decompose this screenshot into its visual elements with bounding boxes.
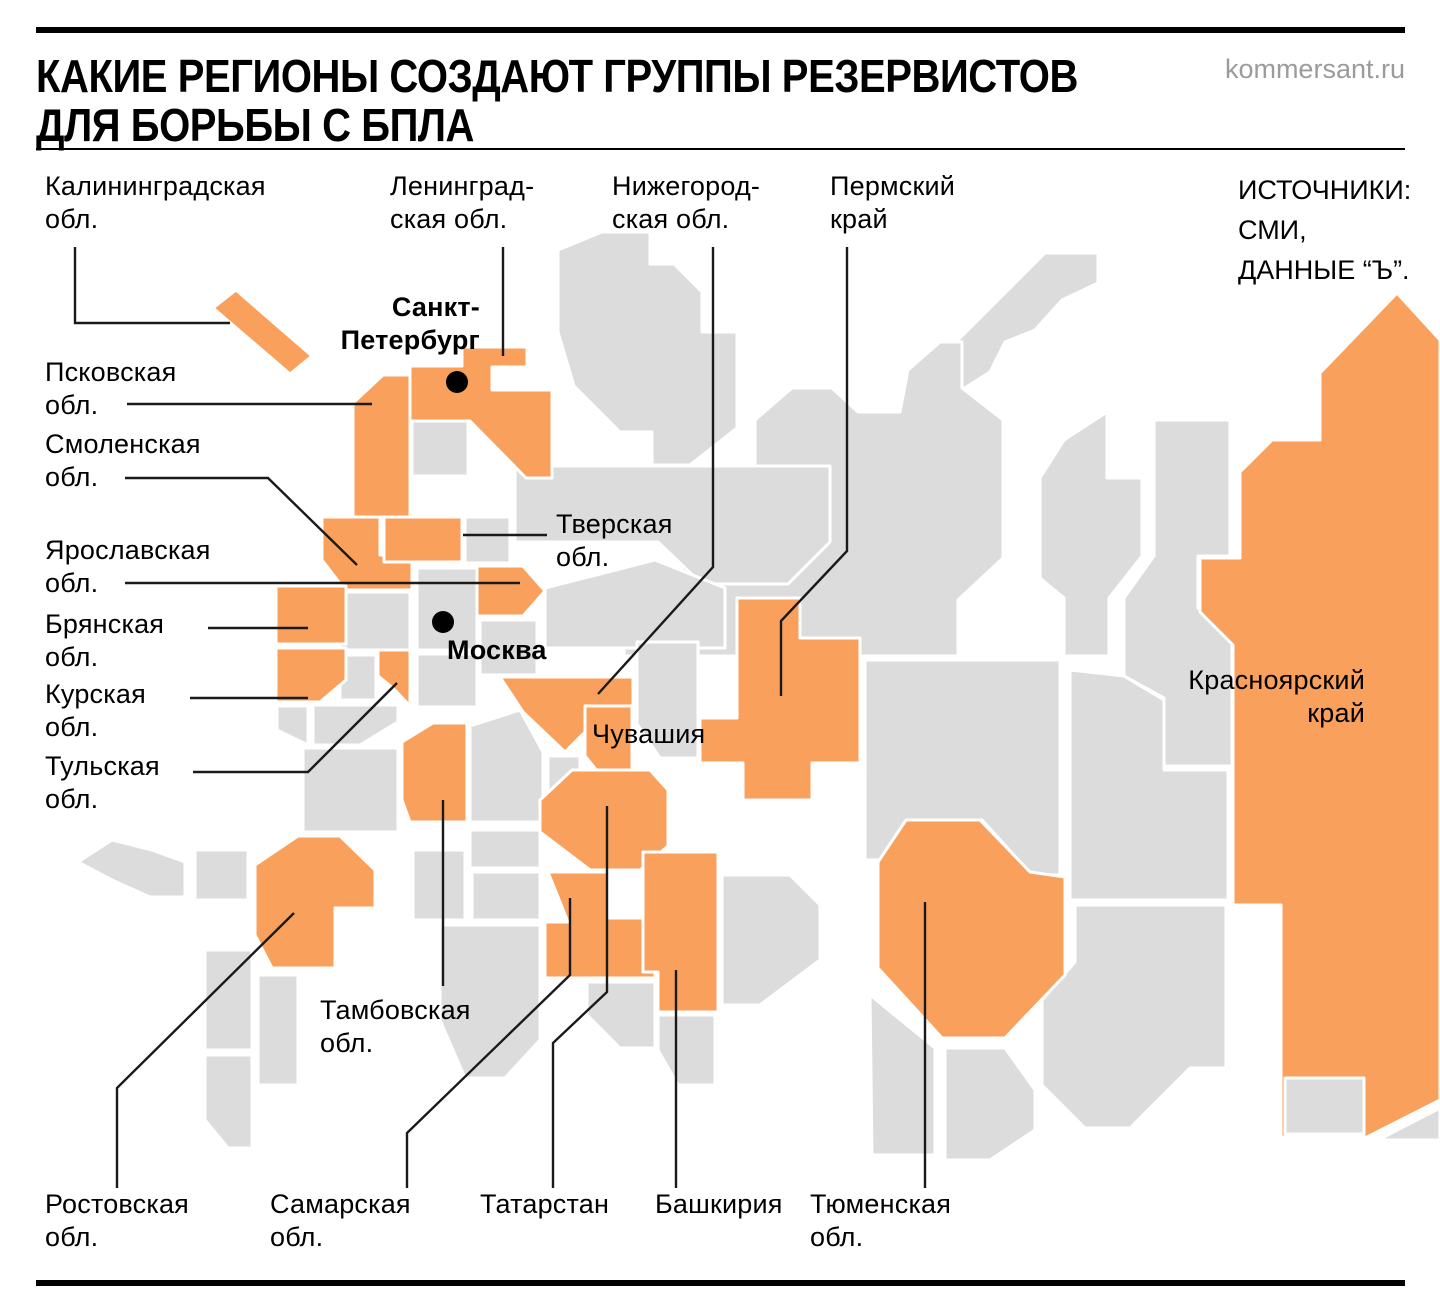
- map-region-kursk: [276, 648, 346, 702]
- label-pskov: Псковскаяобл.: [45, 356, 176, 422]
- label-nizhegorod: Нижегород-ская обл.: [612, 170, 760, 236]
- map-region-kurgan-b: [945, 1048, 1035, 1160]
- map-region-bryansk: [276, 586, 346, 644]
- label-kursk: Курскаяобл.: [45, 678, 146, 744]
- map-region-astrakhan-b: [658, 1015, 715, 1085]
- base-regions: [78, 232, 1232, 1160]
- map-region-stavropol: [205, 950, 252, 1050]
- map-region-kaluga: [340, 592, 410, 650]
- map-region-samara: [545, 872, 655, 978]
- map-region-rostov: [255, 836, 375, 968]
- map-region-tambov: [402, 723, 467, 822]
- label-bryansk: Брянскаяобл.: [45, 608, 164, 674]
- label-krasnoyarsk: Красноярскийкрай: [1135, 664, 1365, 730]
- map-region-voronezh: [303, 748, 398, 832]
- map-region-mordovia: [470, 710, 543, 822]
- map-region-crimea: [78, 840, 185, 897]
- map-region-tver-gap-tile: [465, 517, 510, 563]
- map-region-belgorod: [277, 706, 308, 745]
- callout-kaliningrad: [75, 247, 230, 323]
- map-region-astrakhan-a: [587, 982, 655, 1048]
- label-tula: Тульскаяобл.: [45, 750, 160, 816]
- label-moscow: Москва: [447, 634, 547, 667]
- label-bashkiria: Башкирия: [655, 1188, 783, 1221]
- map-region-karelia: [558, 232, 737, 465]
- label-tver: Тверскаяобл.: [556, 508, 673, 574]
- map-region-saratov-w: [413, 850, 465, 920]
- map-region-kalmykia: [258, 975, 298, 1085]
- label-chuvashia: Чувашия: [592, 718, 705, 751]
- map-region-yaroslavl: [477, 566, 545, 616]
- spb-city-dot: [446, 371, 468, 393]
- label-tambov: Тамбовскаяобл.: [320, 994, 471, 1060]
- map-region-novgorod: [412, 419, 468, 476]
- map-region-penza-s: [472, 872, 540, 920]
- label-yaroslavl: Ярославскаяобл.: [45, 534, 211, 600]
- label-smolensk: Смоленскаяобл.: [45, 428, 201, 494]
- map-region-kuban: [195, 850, 248, 900]
- label-tyumen: Тюменскаяобл.: [810, 1188, 951, 1254]
- map-region-dagestan: [205, 1055, 252, 1148]
- map-region-khakassia-notch: [1285, 1078, 1364, 1134]
- label-perm: Пермскийкрай: [830, 170, 955, 236]
- map-region-penza-n: [470, 830, 540, 868]
- map-region-orenburg: [722, 875, 820, 1005]
- label-samara: Самарскаяобл.: [270, 1188, 411, 1254]
- map-region-pskov: [353, 375, 410, 517]
- map-region-omsk-cluster: [1042, 905, 1226, 1128]
- label-rostov: Ростовскаяобл.: [45, 1188, 189, 1254]
- map-region-tver: [384, 517, 462, 562]
- label-tatarstan: Татарстан: [480, 1188, 609, 1221]
- infographic-root: КАКИЕ РЕГИОНЫ СОЗДАЮТ ГРУППЫ РЕЗЕРВИСТОВ…: [0, 0, 1440, 1315]
- label-kaliningrad: Калининградскаяобл.: [45, 170, 266, 236]
- label-leningrad: Ленинград-ская обл.: [390, 170, 534, 236]
- moscow-city-dot: [432, 611, 454, 633]
- label-spb: Санкт-Петербург: [280, 291, 480, 357]
